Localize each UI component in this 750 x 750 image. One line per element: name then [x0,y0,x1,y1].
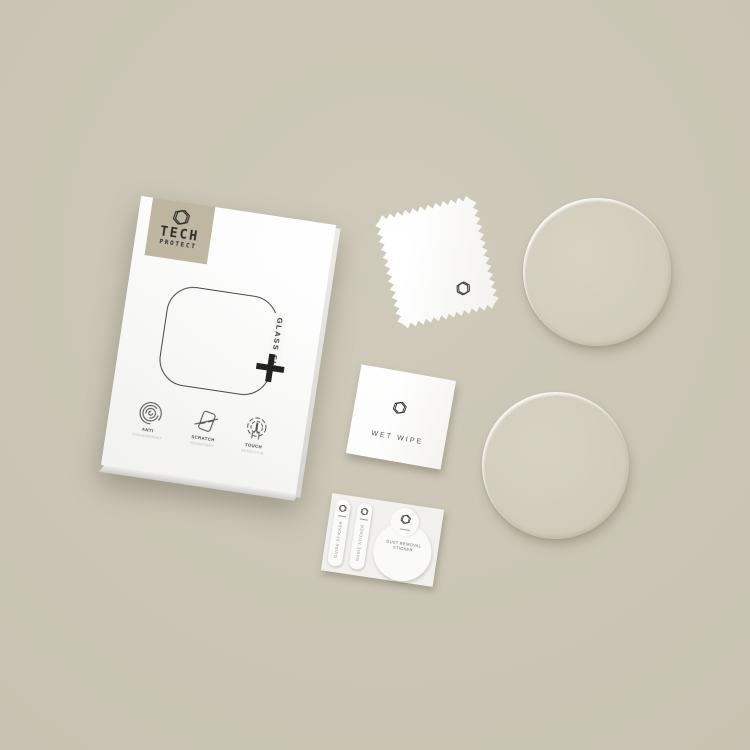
sticker-sheet: GUIDE STICKER GUIDE STICKER DUST REMOVAL… [321,493,444,587]
guide-sticker-label: GUIDE STICKER [355,524,364,561]
hexagon-logo-icon [454,278,474,298]
wet-wipe-label: WET WIPE [349,426,445,450]
guide-sticker-2: GUIDE STICKER [348,502,373,570]
guide-sticker-1: GUIDE STICKER [327,499,352,567]
glass-protector-2 [482,392,629,539]
feature-scratch-resistant: SCRATCH RESISTANT [176,404,234,453]
product-photo: TECH PROTECT GLASS FIT [0,0,750,750]
hexagon-logo-icon [359,506,369,516]
divider-line [338,515,346,517]
touch-sensitive-icon [241,414,272,445]
box-face: TECH PROTECT GLASS FIT [101,196,336,494]
scratch-resistant-icon [190,406,221,437]
wet-wipe-packet: WET WIPE [346,364,456,469]
brand-logo-square: TECH PROTECT [144,198,215,265]
feature-anti-fingerprint: ANTI FINGERPRINT [120,396,178,445]
guide-sticker-label: GUIDE STICKER [333,521,342,558]
glass-protector-1 [523,198,671,346]
watch-shape-outline: GLASS FIT [156,283,282,398]
fingerprint-icon [135,398,166,429]
hexagon-logo-icon [391,399,410,418]
feature-touch-sensitive: TOUCH SENSITIVE [226,412,284,461]
plus-icon [253,351,287,385]
hexagon-logo-icon [400,512,414,526]
product-box: TECH PROTECT GLASS FIT [101,196,336,494]
hexagon-logo-icon [338,503,348,513]
divider-line [359,518,367,520]
microfiber-cloth [373,194,500,330]
